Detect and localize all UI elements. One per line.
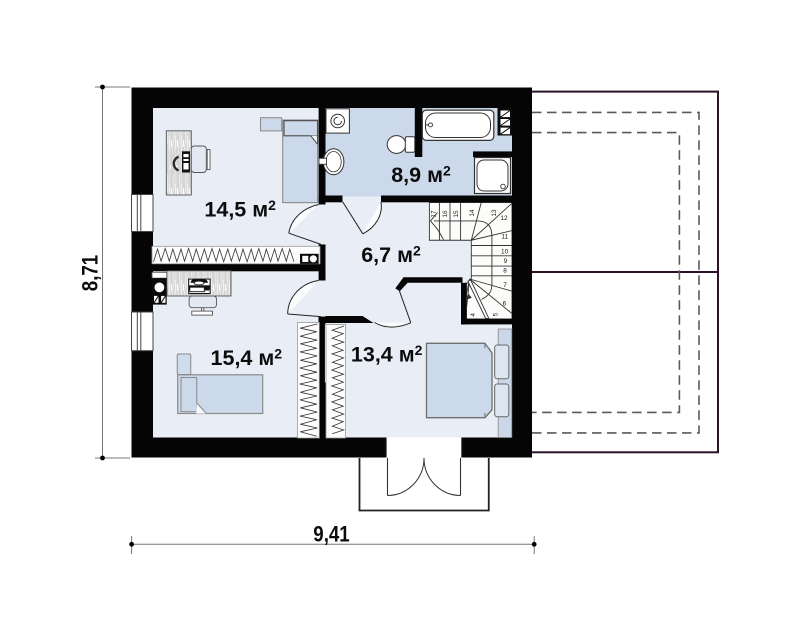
svg-text:6: 6 [503,300,507,307]
svg-text:13,4 м2: 13,4 м2 [351,342,423,367]
svg-text:15,4 м2: 15,4 м2 [211,345,283,370]
svg-text:5: 5 [493,312,500,316]
svg-text:8,71: 8,71 [79,255,103,291]
svg-text:16: 16 [442,210,449,218]
svg-text:10: 10 [501,249,509,256]
svg-text:4: 4 [470,313,477,317]
svg-text:7: 7 [503,282,507,289]
svg-text:8,9 м2: 8,9 м2 [391,163,451,188]
svg-text:17: 17 [431,210,438,218]
svg-text:14: 14 [469,209,476,217]
svg-text:11: 11 [501,233,508,240]
svg-text:8: 8 [503,268,507,275]
svg-text:9,41: 9,41 [313,523,349,547]
svg-text:6,7 м2: 6,7 м2 [361,242,421,267]
svg-text:13: 13 [491,209,498,217]
svg-text:14,5 м2: 14,5 м2 [204,197,276,222]
svg-text:12: 12 [500,215,508,222]
svg-text:15: 15 [453,210,460,218]
svg-text:9: 9 [504,258,508,265]
